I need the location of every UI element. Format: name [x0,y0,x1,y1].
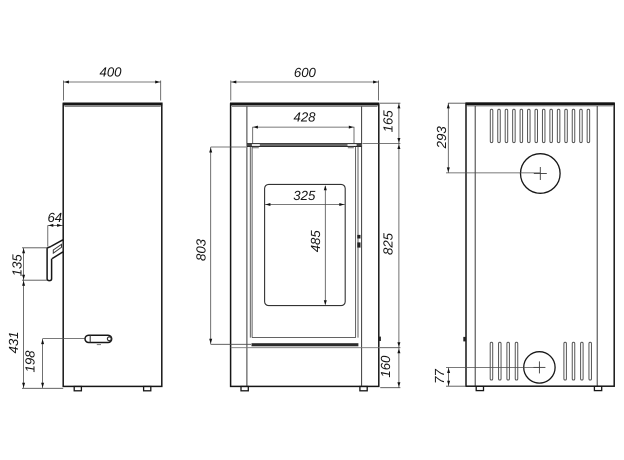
svg-text:600: 600 [294,65,317,80]
svg-text:325: 325 [293,188,316,203]
svg-text:293: 293 [434,126,449,150]
svg-text:160: 160 [378,355,393,378]
svg-text:485: 485 [308,230,323,253]
svg-text:64: 64 [47,210,62,225]
svg-text:825: 825 [380,232,395,255]
svg-text:198: 198 [22,350,37,373]
svg-text:803: 803 [193,238,208,261]
svg-text:431: 431 [6,331,21,353]
svg-text:428: 428 [293,109,316,124]
svg-text:165: 165 [381,110,396,133]
svg-text:135: 135 [9,254,24,277]
svg-text:400: 400 [99,64,122,79]
svg-text:77: 77 [432,369,447,384]
